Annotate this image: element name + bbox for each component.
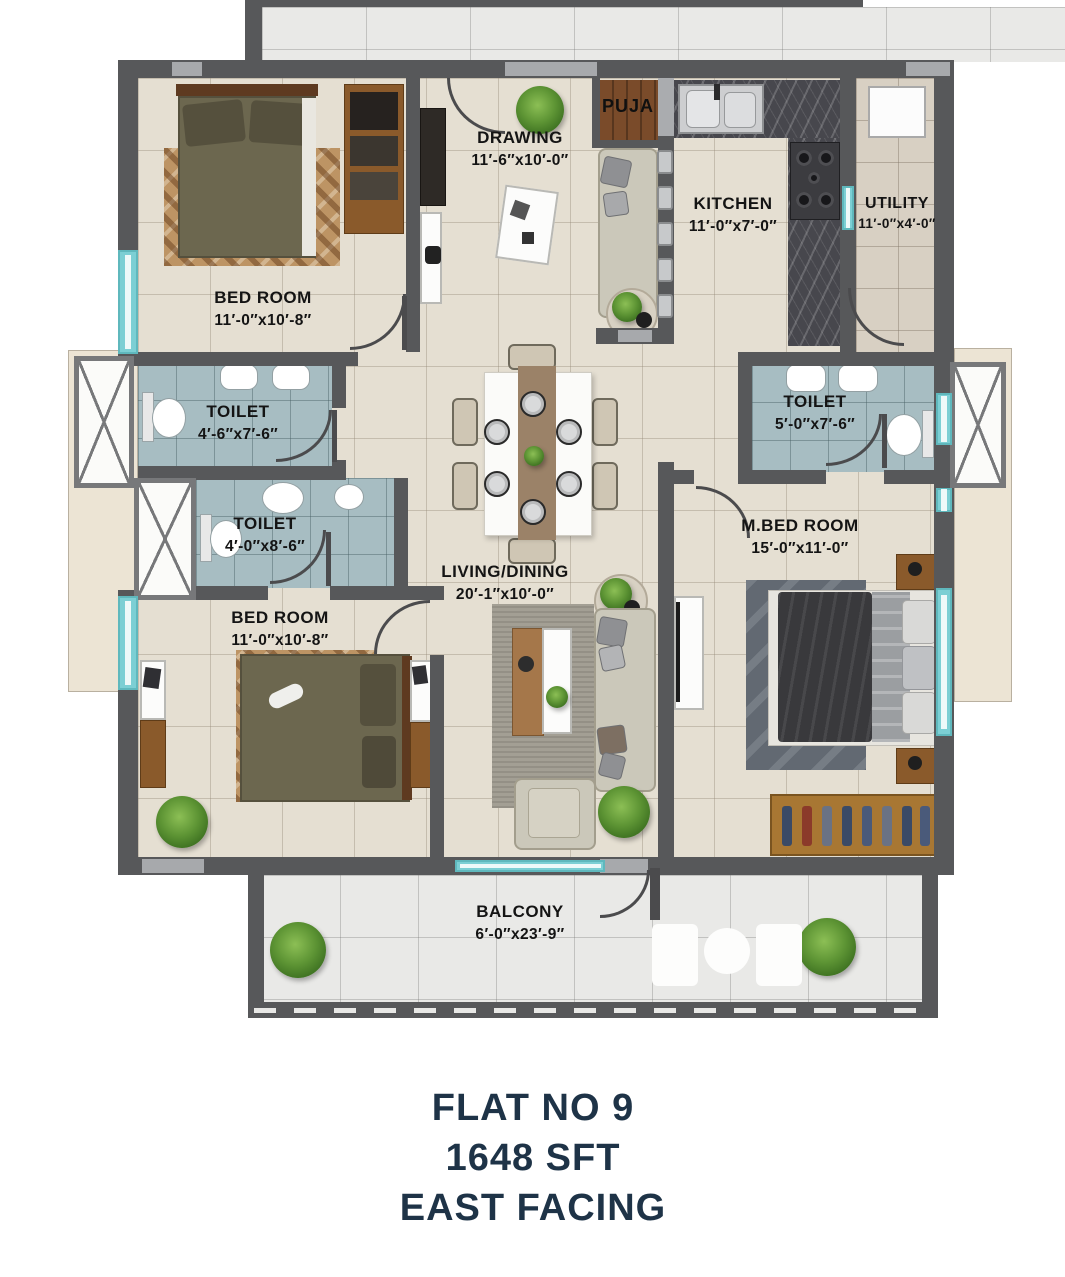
floor-plan: BED ROOM 11′-0″x10′-8″ DRAWING 11′-6″x10… xyxy=(0,0,1065,1277)
wall xyxy=(658,470,694,484)
wall xyxy=(245,0,262,62)
main-door-lintel xyxy=(505,62,597,76)
dresser xyxy=(410,722,432,788)
table-item xyxy=(522,232,534,244)
wardrobe xyxy=(770,794,938,856)
sofa-pillow xyxy=(596,616,628,648)
cabinet xyxy=(657,258,673,282)
armchair-cushion xyxy=(528,788,580,838)
plate xyxy=(520,499,546,525)
bed-headboard xyxy=(176,84,318,96)
dining-chair xyxy=(452,398,478,446)
wall xyxy=(196,586,268,600)
room-label-puja: PUJA xyxy=(598,96,658,117)
plate xyxy=(484,471,510,497)
wash-basin xyxy=(838,364,878,392)
toilet-bowl xyxy=(886,414,922,456)
wash-basin xyxy=(334,484,364,510)
balcony-chair xyxy=(652,924,698,986)
sofa-pillow xyxy=(596,724,628,756)
plant xyxy=(270,922,326,978)
door-leaf xyxy=(650,868,660,920)
bed-pillow xyxy=(902,692,936,734)
railing-dashes xyxy=(254,1008,932,1013)
clothes xyxy=(782,806,792,846)
plant xyxy=(156,796,208,848)
plant xyxy=(516,86,564,134)
sink-drainer xyxy=(724,92,756,128)
centerpiece-plant xyxy=(524,446,544,466)
wall xyxy=(332,352,346,408)
wardrobe-shelf xyxy=(350,92,398,130)
flat-area: 1648 SFT xyxy=(283,1133,783,1183)
plant xyxy=(798,918,856,976)
center-table xyxy=(495,185,559,266)
bed-pillow xyxy=(249,100,310,146)
wall xyxy=(253,0,863,7)
flat-facing: EAST FACING xyxy=(283,1183,783,1233)
window xyxy=(936,488,952,512)
lintel xyxy=(618,330,652,342)
burner xyxy=(808,172,820,184)
toilet-tank xyxy=(922,410,934,458)
wash-basin xyxy=(220,364,258,390)
plant xyxy=(598,786,650,838)
room-name: PUJA xyxy=(598,96,658,117)
door-leaf xyxy=(326,532,331,586)
cabinet xyxy=(657,294,673,318)
dining-chair xyxy=(592,398,618,446)
bed-pillow xyxy=(902,646,936,690)
burner xyxy=(818,150,834,166)
plate xyxy=(556,419,582,445)
clothes xyxy=(862,806,872,846)
plan-title: FLAT NO 9 1648 SFT EAST FACING xyxy=(283,1083,783,1233)
wash-basin xyxy=(786,364,826,392)
sofa-pillow xyxy=(599,155,632,188)
flat-number: FLAT NO 9 xyxy=(283,1083,783,1133)
window xyxy=(118,250,138,354)
bed-blanket xyxy=(778,592,872,742)
clothes xyxy=(902,806,912,846)
shaft-window xyxy=(74,356,134,488)
wall xyxy=(248,868,264,1018)
burner xyxy=(796,192,812,208)
balcony-chair xyxy=(756,924,802,986)
column xyxy=(658,78,674,136)
tv xyxy=(676,602,680,702)
laptop xyxy=(143,667,162,689)
clock xyxy=(518,656,534,672)
cabinet xyxy=(657,222,673,246)
sofa-pillow xyxy=(602,190,629,217)
window xyxy=(455,860,605,872)
wall xyxy=(658,462,674,857)
bowl xyxy=(636,312,652,328)
clothes xyxy=(920,806,930,846)
wall xyxy=(330,586,444,600)
wall xyxy=(738,352,752,484)
bed-pillow xyxy=(902,600,936,644)
wall xyxy=(738,352,954,366)
wall xyxy=(406,60,420,352)
toilet-bowl xyxy=(210,520,242,558)
lintel xyxy=(172,62,202,76)
bed-pillow xyxy=(360,664,396,726)
lintel xyxy=(906,62,950,76)
wardrobe-shelf xyxy=(350,172,398,200)
balcony-table xyxy=(704,928,750,974)
wardrobe-shelf xyxy=(350,136,398,166)
wall xyxy=(752,470,826,484)
wall xyxy=(394,478,408,600)
bed-cushion xyxy=(362,736,396,788)
cabinet xyxy=(657,186,673,210)
wash-basin xyxy=(262,482,304,514)
coffee-table xyxy=(512,628,544,736)
wall xyxy=(430,655,444,857)
wall xyxy=(118,352,358,366)
lintel xyxy=(142,859,204,873)
plate xyxy=(520,391,546,417)
shaft-window xyxy=(134,478,196,600)
wall xyxy=(884,470,944,484)
clothes xyxy=(882,806,892,846)
clothes xyxy=(822,806,832,846)
burner xyxy=(796,150,812,166)
plate xyxy=(484,419,510,445)
dining-chair xyxy=(452,462,478,510)
nightstand-item xyxy=(908,756,922,770)
dresser xyxy=(140,720,166,788)
wall xyxy=(592,140,658,148)
shoe-rack xyxy=(420,108,446,206)
corridor-floor xyxy=(262,7,1065,62)
chair xyxy=(425,246,441,264)
burner xyxy=(818,192,834,208)
window xyxy=(118,596,138,690)
door-leaf xyxy=(402,296,407,350)
bed-sheet xyxy=(302,98,316,256)
wall xyxy=(922,868,938,1018)
laptop xyxy=(412,665,428,685)
clothes xyxy=(842,806,852,846)
shaft-window xyxy=(950,362,1006,488)
window xyxy=(936,393,952,445)
dining-chair xyxy=(592,462,618,510)
coffee-table-top xyxy=(542,628,572,734)
clothes xyxy=(802,806,812,846)
utility-sink xyxy=(868,86,926,138)
flowers xyxy=(546,686,568,708)
toilet-bowl xyxy=(152,398,186,438)
faucet xyxy=(714,84,720,100)
wash-basin xyxy=(272,364,310,390)
dining-chair xyxy=(508,538,556,564)
bed-pillow xyxy=(182,99,246,147)
door-leaf xyxy=(332,410,337,462)
window xyxy=(842,186,854,230)
cabinet xyxy=(657,150,673,174)
door-leaf xyxy=(882,414,887,468)
nightstand-item xyxy=(908,562,922,576)
window xyxy=(936,588,952,736)
sofa-pillow xyxy=(598,644,626,672)
plate xyxy=(556,471,582,497)
